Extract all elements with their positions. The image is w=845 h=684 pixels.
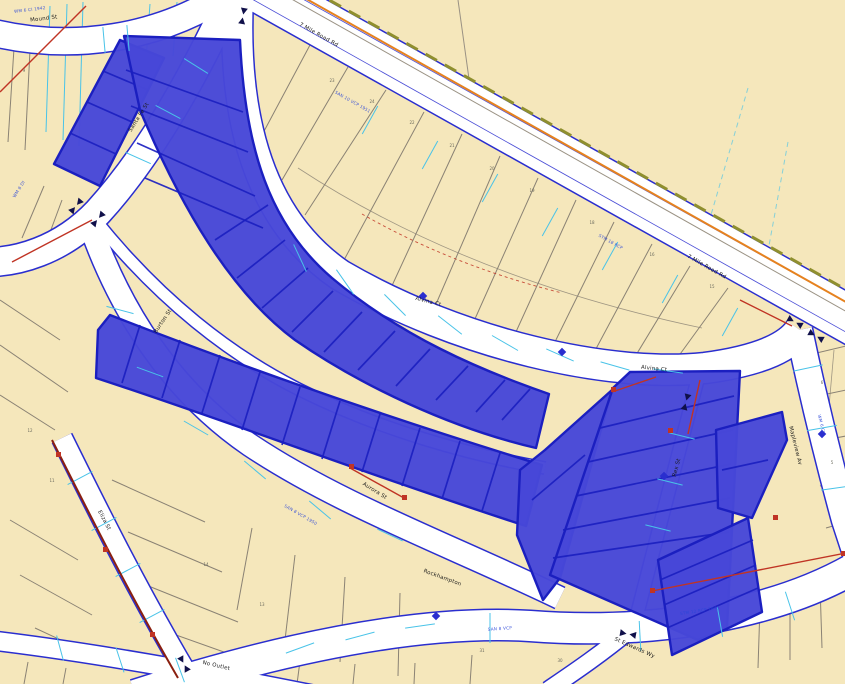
parcel-number: 16 (649, 252, 655, 257)
parcel-number: 22 (409, 120, 415, 125)
parcel-number: 5 (831, 460, 834, 465)
parcel-number: 19 (529, 188, 535, 193)
parcel-number: 6 (821, 380, 824, 385)
map-canvas[interactable]: WM 6 CI 1942 SAN 10 VCP 1951 STM 18 RCP … (0, 0, 845, 684)
parcel-number: 31 (479, 648, 485, 653)
parcel-number: 13 (259, 602, 265, 607)
parcel-number: 20 (489, 166, 495, 171)
parcel-number: 12 (27, 428, 33, 433)
parcel-number: 14 (203, 562, 209, 567)
parcel-number: 18 (589, 220, 595, 225)
parcel-number: 23 (329, 78, 335, 83)
parcel-number: 15 (709, 284, 715, 289)
parcel-number: 9 (23, 68, 26, 73)
parcel-number: 30 (557, 658, 563, 663)
parcel-number: 11 (49, 478, 55, 483)
parcel-number: 24 (369, 99, 375, 104)
parcel-number: 21 (449, 143, 455, 148)
